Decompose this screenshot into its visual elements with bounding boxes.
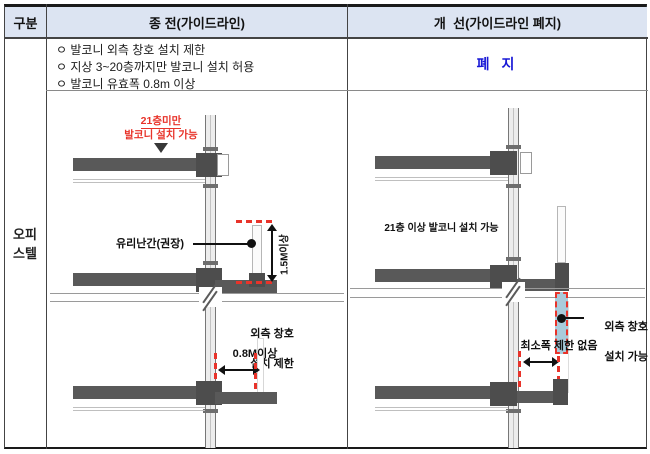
wall-joint-mark: [203, 184, 218, 188]
after-abolished-cell: 폐 지: [347, 38, 648, 90]
diagram-after: 21층 이상 발코니 설치 가능 외측 창호 설치 가능 최소폭 제한 없음: [347, 91, 648, 449]
floor-slab: [375, 386, 508, 399]
section-cut-line: [50, 293, 344, 294]
floor-slab: [375, 156, 508, 169]
floor-finish-line: [375, 177, 508, 178]
header-after-label: 개 선(가이드라인 폐지): [434, 13, 561, 32]
floor-allow-note: 21층 이상 발코니 설치 가능: [369, 219, 514, 234]
floor-finish-line: [375, 180, 508, 181]
category-label-line2: 스텔: [13, 244, 37, 263]
section-break-mark: [502, 282, 525, 302]
slab-end-block: [490, 382, 517, 406]
bullet-item: ㅇ 지상 3~20층까지만 발코니 설치 허용: [56, 59, 347, 76]
red-dashed-line-left: [518, 351, 521, 393]
slab-end-block: [490, 151, 517, 175]
category-cell-officetel: 오피 스텔: [4, 39, 46, 449]
bullet-item: ㅇ 발코니 외측 창호 설치 제한: [56, 42, 347, 59]
header-category-label: 구분: [14, 13, 38, 32]
window-frame: [217, 154, 229, 176]
wall-joint-mark: [203, 147, 218, 151]
category-label-line1: 오피: [13, 225, 37, 244]
floor-slab: [73, 273, 205, 286]
wall-joint-mark: [506, 145, 521, 149]
railing-callout-label: 유리난간(권장): [104, 237, 196, 252]
callout-leader-line: [193, 243, 251, 245]
floor-slab: [73, 158, 205, 171]
callout-dot: [247, 239, 256, 248]
floor-limit-note-line2: 발코니 설치 가능: [124, 129, 197, 141]
min-width-note: 최소폭 제한 없음: [509, 339, 609, 354]
before-bullet-list: ㅇ 발코니 외측 창호 설치 제한 ㅇ 지상 3~20층까지만 발코니 설치 허…: [46, 38, 347, 90]
floor-limit-note-line1: 21층미만: [141, 115, 182, 129]
floor-slab: [73, 386, 205, 399]
header-cell-category: 구분: [5, 7, 46, 37]
floor-finish-line: [73, 179, 205, 180]
window-frame: [520, 152, 532, 174]
floor-slab: [375, 269, 508, 282]
down-triangle-marker: [154, 143, 168, 153]
wall-joint-mark: [506, 257, 521, 261]
section-cut-line: [350, 288, 645, 289]
balcony-railing: [557, 206, 566, 263]
balcony-end-wall: [555, 263, 569, 291]
wall-joint-mark: [203, 409, 218, 413]
floor-finish-line: [375, 410, 508, 411]
floor-limit-note: 21층미만 발코니 설치 가능: [91, 115, 231, 142]
wall-joint-mark: [506, 409, 521, 413]
red-dashed-line-top: [236, 220, 274, 223]
header-cell-before: 종 전(가이드라인): [47, 7, 347, 37]
diagram-before: 21층미만 발코니 설치 가능 1.5M이상 유리난간(권장) 외측 창호: [46, 91, 347, 449]
floor-finish-line: [73, 182, 205, 183]
wall-joint-mark: [203, 261, 218, 265]
glass-railing: [252, 225, 262, 277]
header-cell-after: 개 선(가이드라인 폐지): [348, 7, 647, 37]
railing-base-block: [249, 273, 265, 287]
guideline-comparison-table: 구분 종 전(가이드라인) 개 선(가이드라인 폐지) 오피 스텔 ㅇ 발코니 …: [0, 0, 650, 454]
section-cut-line: [350, 297, 645, 298]
abolished-label: 폐 지: [477, 54, 519, 74]
floor-finish-line: [73, 407, 205, 408]
callout-leader-line: [564, 317, 584, 319]
balcony-end-wall: [553, 379, 568, 405]
window-allow-line1: 외측 창호: [604, 321, 648, 333]
section-break-mark: [199, 287, 222, 307]
floor-finish-line: [73, 410, 205, 411]
red-dashed-line-right: [254, 353, 257, 395]
height-dimension-label: 1.5M이상: [276, 224, 291, 286]
section-cut-line: [50, 301, 344, 302]
header-before-label: 종 전(가이드라인): [149, 13, 245, 32]
wall-joint-mark: [506, 184, 521, 188]
width-dimension-arrow: [523, 357, 559, 367]
floor-finish-line: [375, 407, 508, 408]
balcony-slab-extension: [215, 392, 277, 404]
window-allow-line2: 설치 가능: [604, 351, 648, 363]
